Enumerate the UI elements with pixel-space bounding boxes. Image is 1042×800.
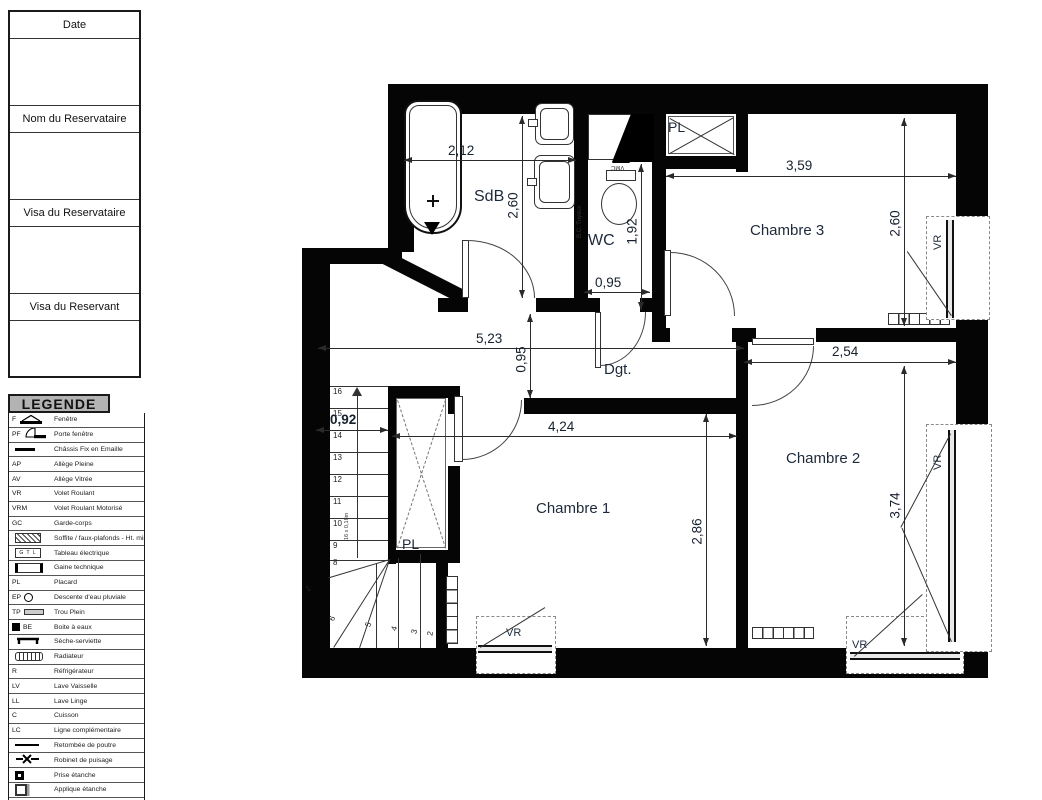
stair-winder-line — [398, 558, 399, 648]
stair-note: 16 x 0,18m — [344, 513, 350, 540]
boite-a-eaux-icon — [12, 623, 20, 631]
vr-label: VR — [506, 627, 521, 639]
wall — [666, 328, 670, 342]
vmc-label: VMC — [611, 164, 624, 170]
legend-row: LV Lave Vaisselle — [9, 679, 144, 694]
legend-row: VRM Volet Roulant Motorisé — [9, 502, 144, 517]
legend-row: Retombée de poutre — [9, 739, 144, 754]
door-arc-chambre2 — [752, 346, 814, 406]
legend-row: EP Descente d'eau pluviale — [9, 591, 144, 606]
vr-label: VR — [932, 235, 944, 250]
stair-number: 2 — [425, 631, 435, 637]
legend-row: GC Garde-corps — [9, 517, 144, 532]
wall — [388, 386, 460, 398]
legend-row: Gaine technique — [9, 561, 144, 576]
wall — [388, 84, 988, 114]
stair-number: 13 — [333, 453, 342, 462]
dimension-label: 2,12 — [448, 143, 474, 158]
wall — [388, 386, 396, 564]
room-label-wc: WC — [588, 232, 615, 250]
dimension-label: 2,54 — [832, 344, 858, 359]
stair-tread — [330, 540, 388, 541]
title-block-visa-reservataire-label: Visa du Reservataire — [10, 200, 139, 227]
title-block-nom-label: Nom du Reservataire — [10, 106, 139, 133]
wall — [380, 250, 467, 303]
room-label-sdb: SdB — [474, 188, 504, 206]
legend-row: G T L Tableau électrique — [9, 546, 144, 561]
stair-walk-line — [357, 394, 358, 558]
room-label-chambre2: Chambre 2 — [786, 450, 860, 467]
legend-title: LEGENDE — [8, 394, 110, 413]
vr-label: VR — [852, 639, 867, 651]
wall — [816, 328, 956, 342]
dimension-line — [706, 414, 707, 646]
floor-plan-page: Date Nom du Reservataire Visa du Reserva… — [0, 0, 1042, 800]
gaine-technique-icon — [15, 563, 43, 573]
washbasin-bowl — [540, 108, 569, 140]
legend-row: LL Lave Linge — [9, 694, 144, 709]
dimension-label: 3,59 — [786, 158, 812, 173]
wall — [302, 252, 330, 662]
washbasin-tap-icon — [528, 119, 538, 127]
legend-row: R Réfrigérateur — [9, 665, 144, 680]
applique-etanche-icon — [15, 784, 27, 796]
wall — [736, 342, 748, 648]
radiateur-icon — [15, 652, 43, 661]
prise-etanche-icon — [15, 771, 24, 780]
dimension-line — [744, 362, 956, 363]
dimension-label: 4,24 — [548, 419, 574, 434]
title-block-nom-field — [10, 133, 139, 200]
vr-label: VR — [932, 455, 944, 470]
washbasin-tap-icon — [527, 178, 537, 186]
stair-number: 8 — [333, 558, 337, 567]
dimension-label: 0,95 — [595, 275, 621, 290]
dimension-line — [316, 430, 388, 431]
bathtub-inner — [409, 105, 457, 229]
chassis-fixe-icon — [15, 448, 35, 451]
wall — [652, 312, 666, 342]
room-label-chambre3: Chambre 3 — [750, 222, 824, 239]
soffite-hatch-icon — [15, 533, 41, 543]
door-arc-chambre3 — [670, 252, 735, 316]
title-block-date-label: Date — [10, 12, 139, 39]
title-block-visa-reservant-label: Visa du Reservant — [10, 294, 139, 321]
room-label-pl-top: PL — [668, 119, 685, 135]
legend-row: AP Allège Pleine — [9, 457, 144, 472]
dimension-line — [530, 314, 531, 398]
legend-row: Radiateur — [9, 650, 144, 665]
window-glazing — [948, 430, 956, 642]
legend-row: AV Allège Vitrée — [9, 472, 144, 487]
dimension-label: 0,92 — [330, 412, 356, 427]
legend-row: Robinet de puisage — [9, 753, 144, 768]
dimension-label: 2,60 — [888, 210, 903, 236]
dimension-line — [392, 436, 737, 437]
window-glazing — [946, 220, 954, 318]
stair-number: 4 — [389, 625, 399, 632]
stair-number: 14 — [333, 431, 342, 440]
dimension-line — [584, 292, 650, 293]
legend-row: PL Placard — [9, 576, 144, 591]
legend-table: F Fenêtre PF Porte fenêtre Châssis Fix e… — [8, 413, 145, 800]
window-chambre3 — [926, 216, 990, 320]
stair-winder-line — [376, 564, 377, 648]
dimension-label: 5,23 — [476, 331, 502, 346]
legend-row: Sèche-serviette — [9, 635, 144, 650]
wall — [588, 298, 600, 312]
dimension-label: 1,92 — [625, 218, 640, 244]
wall — [438, 298, 468, 312]
legend-row: Soffite / faux-plafonds - Ht. min. — [9, 531, 144, 546]
title-block: Date Nom du Reservataire Visa du Reserva… — [8, 10, 141, 378]
tableau-electrique-icon: G T L — [15, 548, 41, 558]
legend-row: LC Ligne complémentaire — [9, 724, 144, 739]
stair-number: 11 — [333, 497, 341, 506]
bathtub-drain-icon — [432, 195, 434, 207]
descente-eau-icon — [24, 593, 33, 602]
door-arc-wc — [600, 312, 646, 366]
legend-row: Prise étanche — [9, 768, 144, 783]
dimension-label: 2,86 — [690, 518, 705, 544]
legend-row: Châssis Fix en Emaille — [9, 443, 144, 458]
wall — [666, 156, 748, 169]
stair-winder-line — [359, 560, 390, 648]
room-label-chambre1: Chambre 1 — [536, 500, 610, 517]
radiator — [446, 576, 458, 644]
radiator — [752, 627, 814, 639]
title-block-visa-reservant-field — [10, 321, 139, 383]
legend-row: BE Boite à eaux — [9, 620, 144, 635]
window-glazing — [478, 645, 552, 653]
legend-row: VR Volet Roulant — [9, 487, 144, 502]
legend-row: F Fenêtre — [9, 413, 144, 428]
title-block-date-field — [10, 39, 139, 106]
dimension-line — [904, 366, 905, 646]
stair-direction-arrow — [352, 387, 362, 396]
dimension-line — [904, 118, 905, 326]
stair-number: 16 — [333, 387, 342, 396]
stair-tread — [330, 560, 388, 561]
dimension-line — [318, 348, 744, 349]
vmc-arrow-icon — [612, 148, 630, 163]
legend-row: TP Trou Plein — [9, 605, 144, 620]
legend-row: C Cuisson — [9, 709, 144, 724]
bc-tuyaux-label: B.C. Tuyaux — [577, 205, 583, 238]
retombee-poutre-icon — [15, 744, 39, 746]
stair-number: 10 — [333, 519, 342, 528]
legend-row: Applique étanche — [9, 783, 144, 798]
window-icon — [19, 413, 43, 428]
wall — [448, 466, 460, 552]
dimension-line — [666, 176, 956, 177]
legend-row: PF Porte fenêtre — [9, 428, 144, 443]
stair-winder-line — [328, 559, 390, 578]
title-block-visa-reservataire-field — [10, 227, 139, 294]
porte-fenetre-icon — [24, 428, 48, 443]
stair-winder-line — [420, 554, 421, 648]
room-label-dgt: Dgt. — [604, 361, 632, 378]
dimension-line — [404, 160, 576, 161]
stair-number: 12 — [333, 475, 342, 484]
robinet-puisage-icon — [15, 753, 41, 768]
door-arc-chambre1 — [462, 400, 522, 460]
toilet-tank — [606, 170, 636, 181]
door-leaf — [752, 338, 814, 345]
dimension-line — [522, 116, 523, 298]
dimension-label: 3,74 — [888, 492, 903, 518]
washbasin-bowl — [539, 161, 570, 203]
stair-number: 5 — [363, 621, 373, 628]
window-glazing — [850, 652, 960, 660]
dimension-label: 2,60 — [506, 192, 521, 218]
stair-number: 3 — [409, 628, 419, 634]
stair-number: 9 — [333, 541, 337, 550]
wall — [536, 298, 576, 312]
wall — [524, 398, 736, 414]
bathtub-spout-icon — [424, 222, 440, 235]
legend: LEGENDE F Fenêtre PF Porte fenêtre Châss… — [8, 394, 145, 800]
room-label-pl-stairs: PL — [402, 536, 419, 552]
trou-plein-icon — [24, 609, 44, 615]
dimension-label: 0,95 — [514, 346, 529, 372]
seche-serviette-icon — [15, 635, 41, 650]
